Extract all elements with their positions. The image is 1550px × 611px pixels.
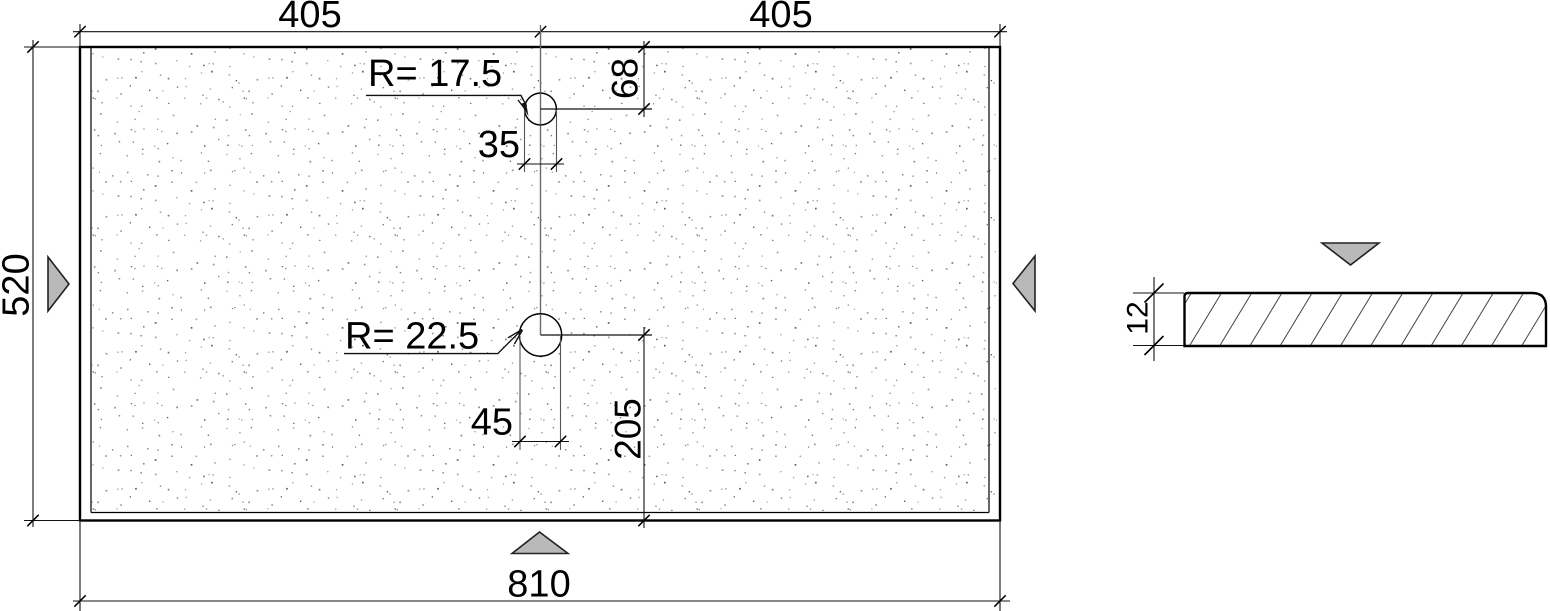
svg-text:R= 17.5: R= 17.5 [368,53,502,95]
svg-text:205: 205 [608,398,649,460]
svg-text:R= 22.5: R= 22.5 [345,316,479,358]
svg-text:35: 35 [478,124,520,166]
svg-text:405: 405 [749,0,812,36]
svg-text:12: 12 [1122,301,1155,334]
svg-text:45: 45 [471,402,513,444]
svg-text:68: 68 [605,58,646,99]
svg-text:405: 405 [278,0,341,36]
svg-text:810: 810 [507,564,570,606]
svg-text:520: 520 [0,253,38,316]
